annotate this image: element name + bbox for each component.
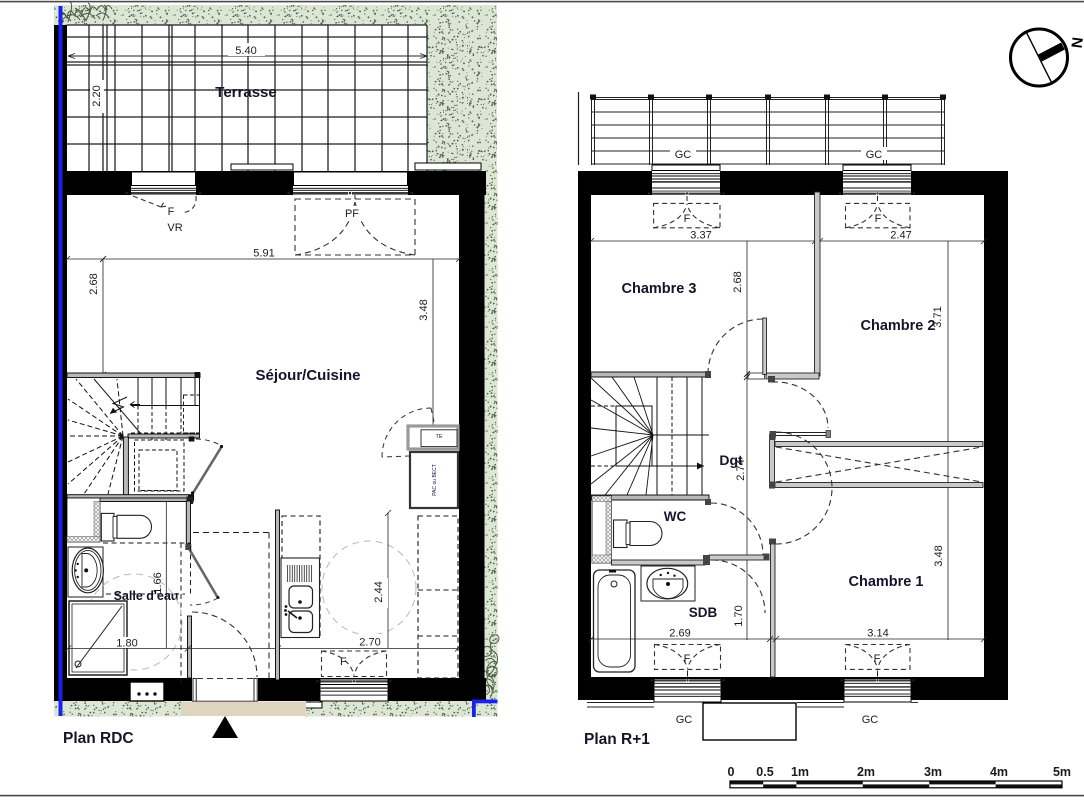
svg-text:2m: 2m [857, 765, 875, 779]
svg-text:2.70: 2.70 [359, 637, 380, 649]
svg-text:VR: VR [167, 222, 182, 234]
svg-text:TE: TE [435, 434, 442, 440]
svg-text:2.44: 2.44 [373, 581, 385, 602]
svg-text:3.37: 3.37 [690, 230, 711, 242]
svg-text:GC: GC [866, 149, 883, 161]
svg-text:2.69: 2.69 [669, 628, 690, 640]
svg-text:5.91: 5.91 [253, 248, 274, 260]
svg-text:Dgt: Dgt [719, 452, 743, 468]
svg-text:GC: GC [675, 149, 692, 161]
svg-text:F: F [684, 213, 691, 225]
svg-text:SDB: SDB [689, 605, 718, 620]
svg-text:F: F [874, 653, 881, 665]
svg-text:1.70: 1.70 [733, 605, 745, 626]
svg-text:2.68: 2.68 [732, 271, 744, 292]
svg-text:N: N [1067, 36, 1084, 49]
svg-text:Chambre 1: Chambre 1 [849, 574, 924, 590]
svg-text:5m: 5m [1053, 765, 1071, 779]
svg-text:GC: GC [676, 714, 693, 726]
svg-text:1m: 1m [791, 765, 809, 779]
svg-text:F: F [340, 656, 347, 668]
svg-text:GC: GC [862, 714, 879, 726]
svg-text:3.71: 3.71 [932, 306, 944, 327]
svg-text:PF: PF [345, 208, 359, 220]
svg-text:0: 0 [728, 765, 735, 779]
svg-text:Chambre 2: Chambre 2 [861, 318, 936, 334]
svg-text:0.5: 0.5 [756, 765, 773, 779]
svg-text:3.48: 3.48 [418, 299, 430, 320]
svg-text:2.47: 2.47 [890, 230, 911, 242]
svg-text:WC: WC [664, 509, 687, 524]
svg-text:3.48: 3.48 [933, 545, 945, 566]
svg-text:4m: 4m [990, 765, 1008, 779]
svg-text:2.20: 2.20 [91, 85, 103, 106]
svg-text:Terrasse: Terrasse [215, 84, 276, 101]
svg-text:PAC ou BECT: PAC ou BECT [432, 464, 438, 496]
svg-text:5.40: 5.40 [235, 45, 256, 57]
svg-text:F: F [684, 653, 691, 665]
svg-text:Plan R+1: Plan R+1 [584, 731, 650, 748]
svg-text:3.14: 3.14 [867, 628, 888, 640]
svg-text:F: F [168, 206, 175, 218]
svg-text:2.68: 2.68 [88, 273, 100, 294]
svg-text:Chambre 3: Chambre 3 [622, 281, 697, 297]
svg-text:1.80: 1.80 [116, 638, 137, 650]
svg-text:Plan RDC: Plan RDC [63, 730, 134, 747]
svg-text:3m: 3m [924, 765, 942, 779]
svg-text:Séjour/Cuisine: Séjour/Cuisine [255, 367, 360, 384]
svg-text:F: F [875, 213, 882, 225]
